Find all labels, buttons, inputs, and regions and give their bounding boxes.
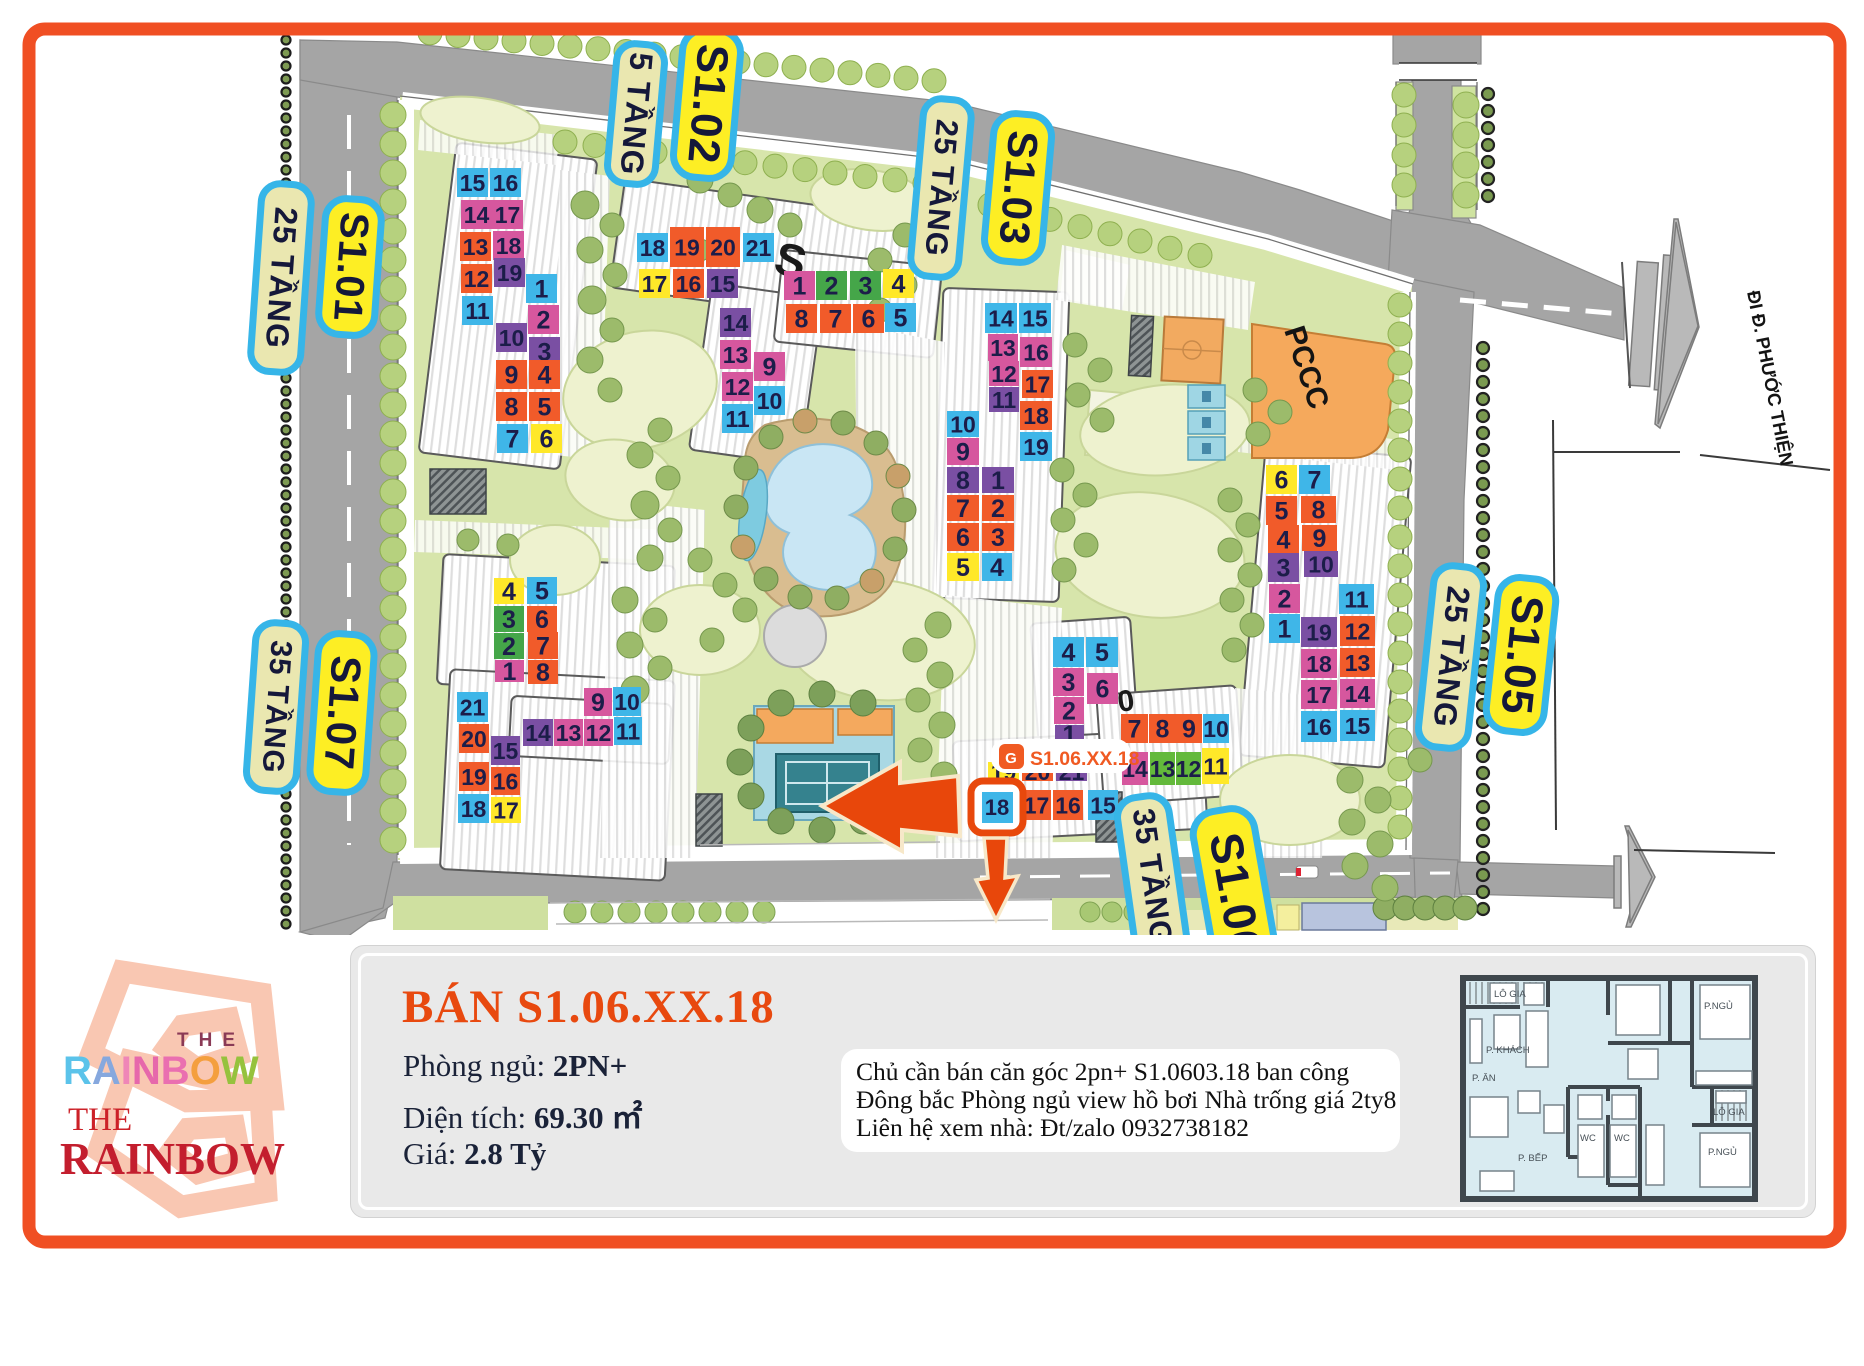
svg-text:1: 1 xyxy=(991,467,1005,495)
svg-text:S1.07: S1.07 xyxy=(315,654,370,772)
svg-text:2: 2 xyxy=(991,495,1005,523)
svg-text:15: 15 xyxy=(1090,792,1116,818)
svg-text:3: 3 xyxy=(1277,555,1291,583)
svg-text:RAINBOW: RAINBOW xyxy=(60,1134,285,1184)
svg-text:12: 12 xyxy=(1176,756,1202,782)
svg-text:4: 4 xyxy=(1277,527,1291,555)
svg-text:17: 17 xyxy=(495,202,521,228)
svg-text:7: 7 xyxy=(956,495,970,523)
svg-text:19: 19 xyxy=(1306,619,1332,645)
svg-text:10: 10 xyxy=(950,411,976,437)
svg-text:6: 6 xyxy=(862,306,876,334)
svg-text:16: 16 xyxy=(493,768,519,794)
svg-text:1: 1 xyxy=(503,658,517,686)
svg-text:S1.01: S1.01 xyxy=(325,211,377,323)
svg-text:13: 13 xyxy=(1345,650,1371,676)
svg-text:17: 17 xyxy=(642,271,668,297)
svg-text:WC: WC xyxy=(1580,1133,1596,1144)
svg-text:11: 11 xyxy=(1203,753,1228,779)
svg-text:19: 19 xyxy=(461,764,487,790)
svg-text:15: 15 xyxy=(1345,713,1371,739)
svg-text:G: G xyxy=(1005,750,1017,767)
svg-text:12: 12 xyxy=(991,361,1017,387)
svg-text:10: 10 xyxy=(499,325,525,351)
svg-text:S1.02: S1.02 xyxy=(678,42,737,166)
svg-text:10: 10 xyxy=(757,388,783,414)
svg-text:10: 10 xyxy=(1203,716,1229,742)
svg-text:11: 11 xyxy=(725,406,750,432)
svg-text:3: 3 xyxy=(1062,669,1076,697)
svg-text:11: 11 xyxy=(465,298,490,324)
svg-text:19: 19 xyxy=(1023,434,1049,460)
svg-text:9: 9 xyxy=(956,439,970,467)
svg-text:S1.03: S1.03 xyxy=(990,129,1047,247)
svg-text:1: 1 xyxy=(535,276,549,304)
svg-text:14: 14 xyxy=(723,310,749,336)
svg-text:4: 4 xyxy=(1062,639,1076,667)
svg-text:5: 5 xyxy=(538,394,552,422)
svg-text:1: 1 xyxy=(1278,616,1292,644)
svg-text:15: 15 xyxy=(1022,305,1048,331)
svg-text:14: 14 xyxy=(525,720,551,746)
svg-text:18: 18 xyxy=(1023,403,1049,429)
svg-text:15: 15 xyxy=(493,738,519,764)
svg-text:5: 5 xyxy=(535,578,549,606)
svg-text:4: 4 xyxy=(990,554,1004,582)
svg-text:7: 7 xyxy=(829,306,843,334)
svg-text:16: 16 xyxy=(1023,339,1049,365)
svg-text:13: 13 xyxy=(463,234,489,260)
svg-text:21: 21 xyxy=(460,694,486,720)
svg-text:13: 13 xyxy=(723,342,749,368)
svg-text:14: 14 xyxy=(464,202,490,228)
svg-text:2: 2 xyxy=(537,307,551,335)
svg-text:10: 10 xyxy=(1308,551,1334,577)
svg-text:17: 17 xyxy=(1306,682,1332,708)
svg-text:18: 18 xyxy=(496,233,522,259)
svg-text:8: 8 xyxy=(1312,497,1326,525)
svg-text:8: 8 xyxy=(1156,716,1170,744)
svg-text:17: 17 xyxy=(493,797,519,823)
svg-text:3: 3 xyxy=(991,524,1005,552)
svg-text:7: 7 xyxy=(536,633,550,661)
svg-text:8: 8 xyxy=(536,659,550,687)
svg-text:3: 3 xyxy=(859,273,873,301)
svg-text:14: 14 xyxy=(1345,681,1371,707)
svg-text:11: 11 xyxy=(992,387,1017,413)
svg-text:17: 17 xyxy=(1025,371,1051,397)
svg-text:19: 19 xyxy=(674,234,700,260)
svg-text:13: 13 xyxy=(990,335,1016,361)
svg-text:8: 8 xyxy=(505,394,519,422)
svg-text:18: 18 xyxy=(985,795,1009,820)
svg-text:RAINBOW: RAINBOW xyxy=(63,1049,259,1093)
svg-text:18: 18 xyxy=(640,235,666,261)
svg-text:21: 21 xyxy=(746,235,772,261)
svg-text:12: 12 xyxy=(464,266,490,292)
svg-text:12: 12 xyxy=(586,720,612,746)
svg-text:8: 8 xyxy=(795,306,809,334)
svg-text:6: 6 xyxy=(1096,676,1110,704)
svg-text:9: 9 xyxy=(763,354,777,382)
svg-text:8: 8 xyxy=(956,467,970,495)
svg-text:18: 18 xyxy=(461,796,487,822)
svg-text:13: 13 xyxy=(556,720,582,746)
svg-text:18: 18 xyxy=(1306,651,1332,677)
svg-text:9: 9 xyxy=(1313,525,1327,553)
svg-text:16: 16 xyxy=(1055,792,1081,818)
svg-text:4: 4 xyxy=(502,578,516,606)
svg-text:P. ĂN: P. ĂN xyxy=(1472,1073,1496,1084)
svg-text:5: 5 xyxy=(894,305,908,333)
svg-text:15: 15 xyxy=(460,170,486,196)
svg-text:2: 2 xyxy=(825,273,839,301)
svg-text:THE: THE xyxy=(68,1102,132,1138)
svg-text:6: 6 xyxy=(535,606,549,634)
svg-text:WC: WC xyxy=(1614,1133,1630,1144)
svg-text:12: 12 xyxy=(1345,618,1371,644)
svg-text:P.NGỦ: P.NGỦ xyxy=(1704,1000,1733,1012)
svg-text:14: 14 xyxy=(988,305,1014,331)
svg-text:16: 16 xyxy=(1306,714,1332,740)
svg-text:13: 13 xyxy=(1150,756,1176,782)
svg-text:LÔ GIA: LÔ GIA xyxy=(1713,1107,1745,1118)
svg-text:17: 17 xyxy=(1024,792,1050,818)
svg-text:11: 11 xyxy=(616,718,641,744)
svg-text:S1.06.XX.18: S1.06.XX.18 xyxy=(1030,748,1140,770)
svg-text:7: 7 xyxy=(506,426,520,454)
svg-text:P. BẾP: P. BẾP xyxy=(1518,1153,1547,1164)
svg-text:10: 10 xyxy=(614,689,640,715)
svg-text:1: 1 xyxy=(793,273,807,301)
svg-text:2: 2 xyxy=(1278,586,1292,614)
svg-text:9: 9 xyxy=(591,689,605,717)
svg-text:P.NGỦ: P.NGỦ xyxy=(1708,1146,1737,1158)
svg-text:20: 20 xyxy=(461,726,487,752)
svg-text:6: 6 xyxy=(1275,467,1289,495)
svg-text:20: 20 xyxy=(710,234,736,260)
svg-text:5: 5 xyxy=(1095,639,1109,667)
svg-text:5: 5 xyxy=(956,554,970,582)
svg-text:THE: THE xyxy=(177,1030,245,1051)
svg-text:9: 9 xyxy=(505,362,519,390)
svg-text:19: 19 xyxy=(497,260,523,286)
svg-text:11: 11 xyxy=(1344,586,1369,612)
svg-text:4: 4 xyxy=(892,271,906,299)
svg-text:16: 16 xyxy=(493,170,519,196)
svg-text:12: 12 xyxy=(725,374,751,400)
svg-text:15: 15 xyxy=(710,271,736,297)
svg-text:4: 4 xyxy=(538,362,552,390)
svg-text:6: 6 xyxy=(540,426,554,454)
svg-text:3: 3 xyxy=(502,606,516,634)
svg-text:LÔ GIA: LÔ GIA xyxy=(1494,989,1526,1000)
svg-text:P. KHÁCH: P. KHÁCH xyxy=(1486,1045,1530,1056)
svg-text:6: 6 xyxy=(956,524,970,552)
svg-text:2: 2 xyxy=(502,633,516,661)
svg-text:7: 7 xyxy=(1128,716,1142,744)
svg-text:9: 9 xyxy=(1182,716,1196,744)
svg-text:7: 7 xyxy=(1308,467,1322,495)
svg-text:5: 5 xyxy=(1275,498,1289,526)
svg-text:16: 16 xyxy=(676,271,702,297)
